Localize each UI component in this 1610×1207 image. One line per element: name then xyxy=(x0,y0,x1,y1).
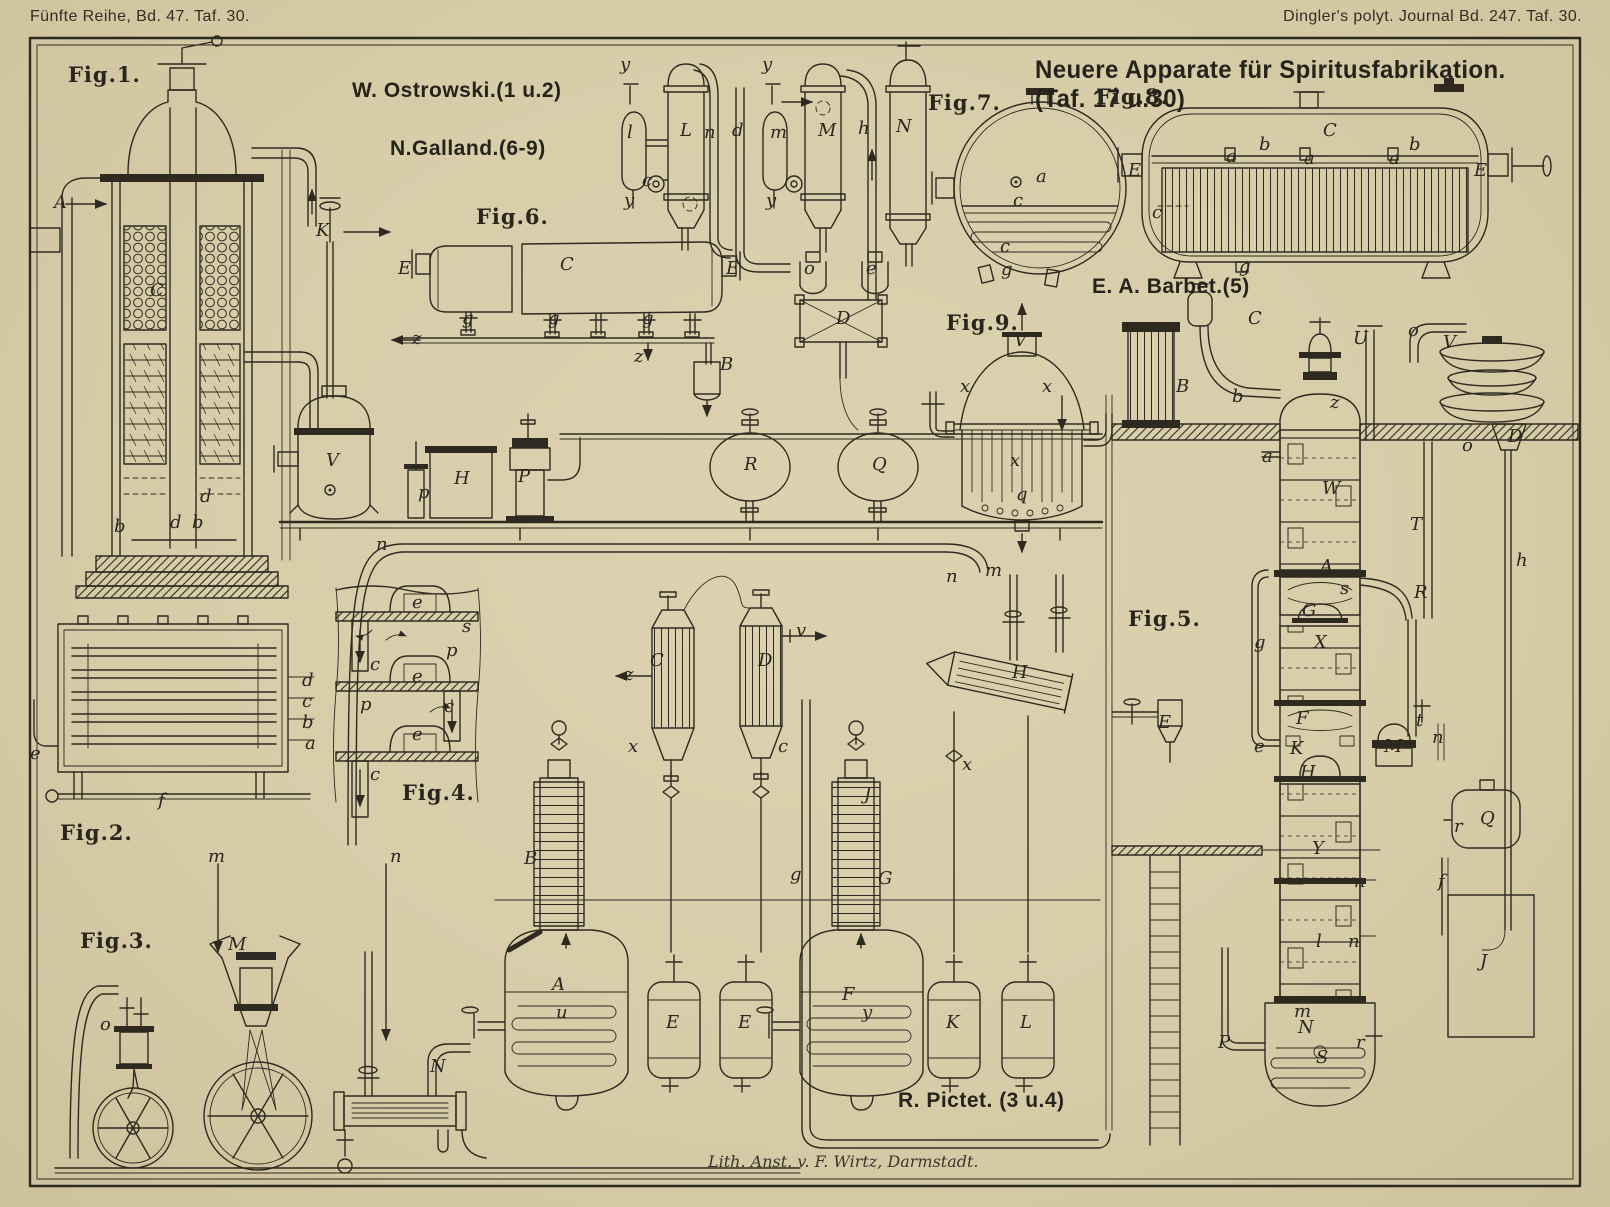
lithographer-imprint: Lith. Anst. v. F. Wirtz, Darmstadt. xyxy=(708,1152,979,1171)
fig6-galland-cylinder xyxy=(320,198,740,416)
fig5-barbet-plant xyxy=(1106,282,1578,1145)
fig3-pictet-compressor xyxy=(55,864,800,1173)
pictet-distillation-group xyxy=(348,544,1110,1148)
fig9-dome-vessel xyxy=(922,304,1112,552)
plate-title: Neuere Apparate für Spiritusfabrikation.… xyxy=(1035,56,1544,114)
lithographic-plate: Fünfte Reihe, Bd. 47. Taf. 30. Dingler's… xyxy=(0,0,1610,1207)
fig7-spherical-vessel xyxy=(932,88,1126,287)
fig1-ostrowski-column xyxy=(30,36,318,598)
galland-column-battery xyxy=(622,42,930,430)
fig6-vessel-row xyxy=(274,386,1102,540)
engraving-canvas xyxy=(0,0,1610,1207)
fig2-tube-condenser xyxy=(34,616,314,802)
